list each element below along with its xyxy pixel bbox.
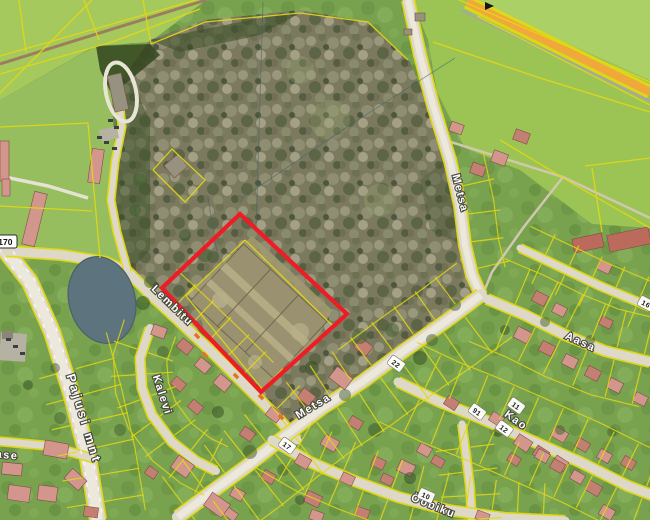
building [37, 485, 58, 502]
tree [339, 389, 351, 401]
building [404, 29, 412, 35]
building [83, 506, 98, 518]
tree [413, 351, 427, 365]
car [112, 147, 117, 150]
tree [449, 299, 461, 311]
aerial-map-viewport[interactable]: Pajusi mnt Lembitu Kalevi Kase Metsa Met… [0, 0, 650, 520]
building [7, 485, 31, 503]
tree [555, 425, 565, 435]
car [104, 141, 109, 144]
tree [54, 412, 66, 424]
tree [136, 296, 150, 310]
tree [23, 380, 33, 390]
tree [385, 323, 399, 337]
building [2, 179, 10, 196]
tree [500, 325, 510, 335]
tree [50, 363, 60, 373]
tree [426, 334, 438, 346]
building [415, 13, 425, 21]
tree [179, 229, 191, 241]
car [108, 119, 113, 122]
aerial-map: Pajusi mnt Lembitu Kalevi Kase Metsa Met… [0, 0, 650, 520]
building [0, 141, 9, 181]
tree [295, 495, 305, 505]
car [13, 345, 18, 348]
road-number-badge: 4170 [0, 235, 17, 248]
street-label-kase: Kase [0, 447, 19, 462]
building [1, 462, 22, 476]
tree [404, 472, 416, 484]
tree [129, 204, 141, 216]
tree [540, 317, 550, 327]
car [114, 126, 119, 129]
car [6, 338, 11, 341]
tree [212, 406, 224, 418]
car [97, 136, 102, 139]
car [20, 352, 25, 355]
tree [133, 173, 147, 187]
road-number-text: 4170 [0, 237, 13, 247]
tree [114, 424, 126, 436]
